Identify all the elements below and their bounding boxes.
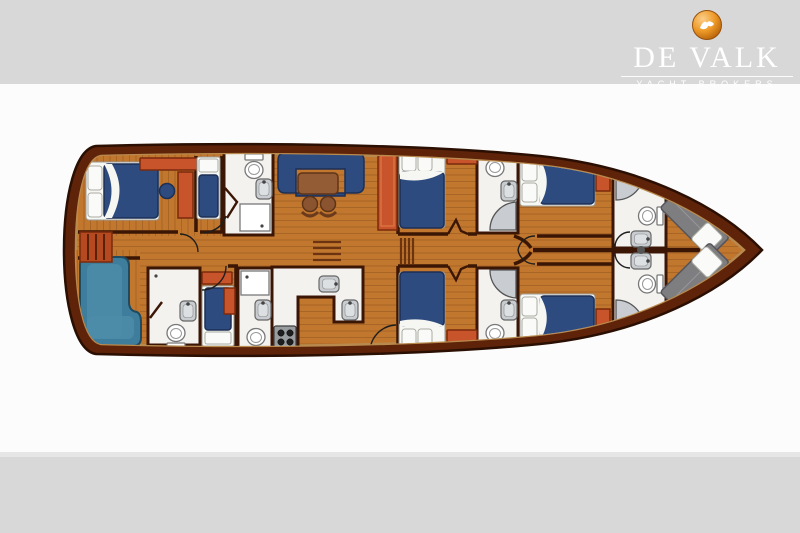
shower-tray [241,271,269,295]
wardrobe [178,172,193,218]
sink-icon [631,253,651,269]
vanity-stool [160,184,175,199]
pillow [88,166,102,190]
pillow [522,183,537,202]
pillow [522,297,537,316]
sink-icon [501,300,517,320]
top-shelf-cabinet [140,158,197,170]
sofa-seat [87,316,134,339]
toilet-icon [639,275,664,293]
sink-icon [180,301,196,321]
pillow [199,159,218,172]
mattress [400,272,444,326]
stove [274,326,296,349]
sink-icon [255,300,271,320]
aft-single-cabin-top [197,157,220,219]
pillow [88,193,102,217]
sink-icon [631,231,651,247]
stool [303,197,318,212]
yacht-floor-plan [0,0,800,533]
sink-icon [501,181,517,201]
pillow [522,318,537,338]
cabinet [224,288,235,314]
sink-icon [256,179,272,199]
salon-table [298,173,338,194]
mattress [199,175,218,217]
toilet-icon [167,325,185,350]
toilet-icon [639,207,664,225]
aft-double-cabin [86,158,197,220]
stool [321,197,336,212]
aft-companionway-steps [80,232,112,262]
mattress [400,172,444,228]
shower-tray [240,204,270,231]
galley-sink-icon [342,300,358,320]
galley-sink-icon [319,276,339,292]
pillow [205,332,231,344]
locker [202,272,232,284]
washstand-pedestal [637,246,645,254]
toilet-icon [245,154,263,179]
page: DE VALK YACHT BROKERS [0,0,800,533]
